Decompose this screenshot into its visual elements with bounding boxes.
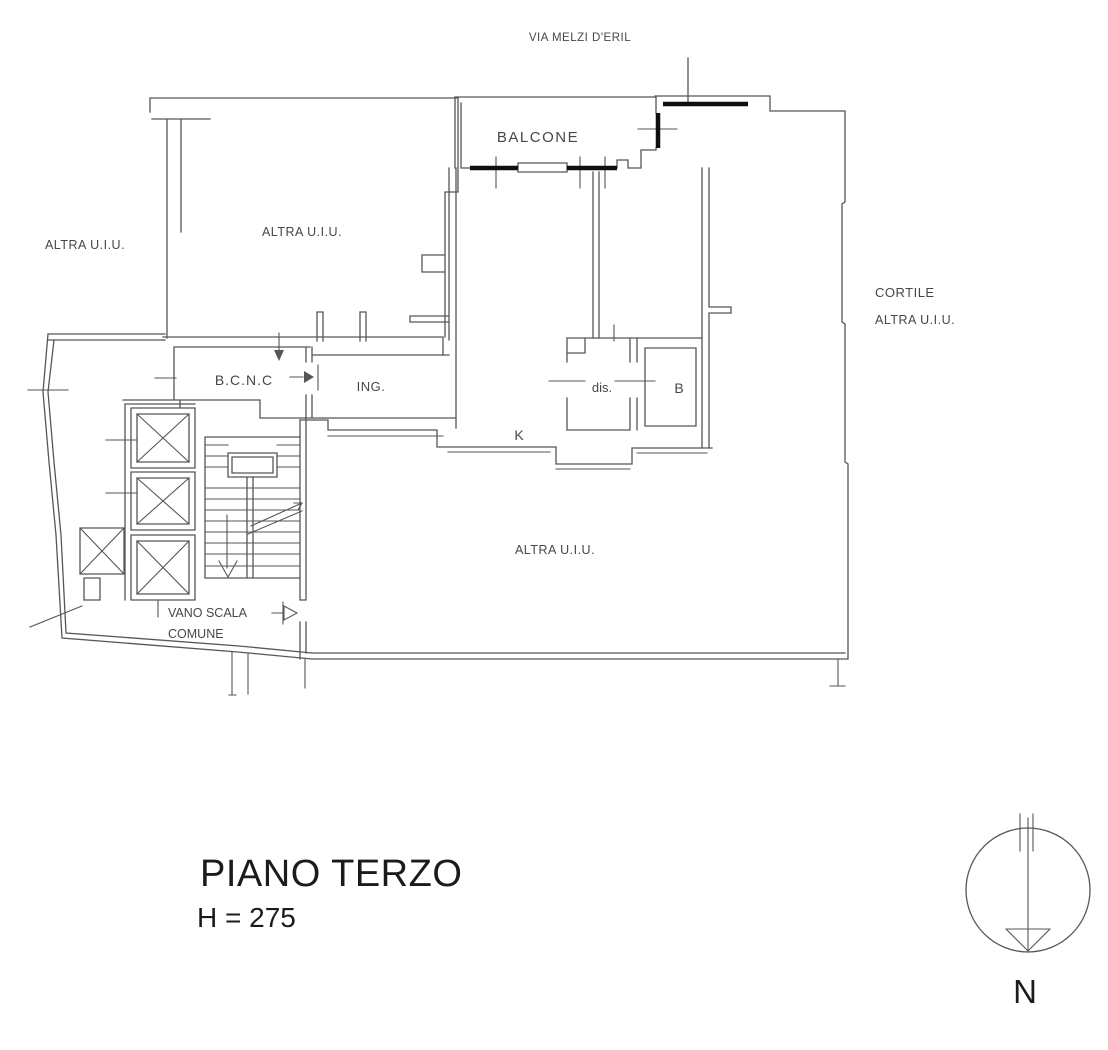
stair-down-arrow bbox=[219, 515, 237, 577]
compass-needle bbox=[1006, 814, 1050, 951]
stair-break-line bbox=[248, 503, 302, 534]
north-compass bbox=[966, 814, 1090, 952]
unit-label-top: ALTRA U.I.U. bbox=[262, 225, 342, 239]
courtyard-unit-label: ALTRA U.I.U. bbox=[875, 313, 955, 327]
room-label-bcnc: B.C.N.C bbox=[215, 372, 273, 388]
courtyard-label: CORTILE bbox=[875, 285, 935, 300]
floor-plan-page: VIA MELZI D'ERIL BALCONE ALTRA U.I.U. AL… bbox=[0, 0, 1108, 1050]
stairwell-label-line2: COMUNE bbox=[168, 627, 224, 641]
street-label: VIA MELZI D'ERIL bbox=[529, 32, 631, 44]
door-symbols bbox=[272, 350, 318, 624]
labels: VIA MELZI D'ERIL BALCONE ALTRA U.I.U. AL… bbox=[45, 32, 1037, 1010]
unit-label-bottom: ALTRA U.I.U. bbox=[515, 543, 595, 557]
staircase bbox=[205, 437, 302, 578]
door-arrow-bcnc-right bbox=[304, 371, 314, 383]
unit-label-left: ALTRA U.I.U. bbox=[45, 238, 125, 252]
stairwell-label-line1: VANO SCALA bbox=[168, 606, 248, 620]
room-label-ingresso: ING. bbox=[357, 379, 386, 394]
bcnc-walls bbox=[123, 312, 456, 418]
north-label: N bbox=[1013, 973, 1037, 1010]
floor-plan-canvas: VIA MELZI D'ERIL BALCONE ALTRA U.I.U. AL… bbox=[0, 0, 1108, 1050]
door-arrow-bcnc-top bbox=[274, 350, 284, 361]
door-arrow-stair-exit bbox=[284, 606, 297, 620]
room-label-bagno: B bbox=[674, 380, 683, 396]
room-label-balcone: BALCONE bbox=[497, 129, 579, 146]
elevator-shafts bbox=[80, 404, 195, 617]
room-label-cucina: K bbox=[514, 427, 524, 443]
interior-walls bbox=[123, 168, 731, 659]
floor-height-label: H = 275 bbox=[197, 902, 296, 933]
floor-title: PIANO TERZO bbox=[200, 853, 462, 895]
elevator-x-marks bbox=[80, 414, 189, 594]
room-label-disimpegno: dis. bbox=[592, 380, 612, 395]
